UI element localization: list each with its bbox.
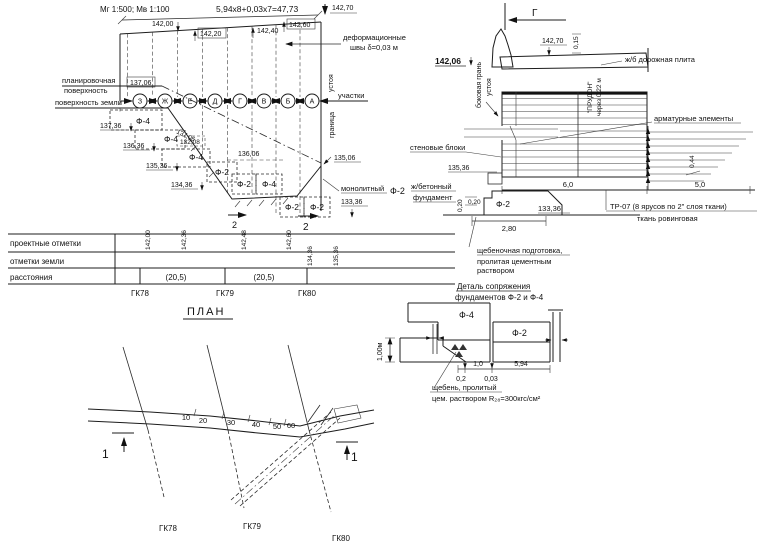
- detail-f2-label: Ф-2: [512, 328, 527, 338]
- foundation-f4-label: Ф-4: [189, 152, 203, 162]
- side-face-label-2: устоя: [486, 78, 493, 96]
- level-133-36: 133,36: [341, 199, 363, 206]
- level-137-36: 137,36: [100, 123, 122, 130]
- elevation-view: Мг 1:500; Мв 1:100 5,94x8+0,03x7=47,73 1…: [55, 4, 456, 233]
- joints-label-2: швы δ=0,03 м: [350, 43, 398, 52]
- table-row-ground: отметки земли: [10, 257, 64, 266]
- rubble-note-1: щебеночная подготовка,: [477, 246, 562, 255]
- distance-value: (20,5): [254, 273, 275, 282]
- design-elevation: 142,60: [286, 230, 293, 250]
- level-142-40: 142,40: [257, 28, 279, 35]
- level-142-00: 142,00: [152, 21, 174, 28]
- axis-letter: А: [310, 99, 315, 106]
- cut-2-mark: 2: [232, 220, 237, 230]
- ground-surface-label: поверхность земли: [55, 98, 122, 107]
- road-slab-label: ж/б дорожная плита: [625, 55, 696, 64]
- plan-station-gk78: ГК78: [159, 524, 177, 533]
- dim-5-94: 5,94: [514, 361, 528, 368]
- level-137-06: 137,06: [130, 80, 152, 87]
- dim-5-0: 5,0: [695, 180, 705, 189]
- abutment-profile: [492, 29, 513, 67]
- elevation-top-dimension: 5,94x8+0,03x7=47,73: [216, 4, 299, 14]
- plan-view: ПЛАН 10 20 30 40 50 60 ГК78 ГК79 ГК80: [88, 306, 374, 543]
- rc-foundation-label-1: ж/бетонный: [411, 182, 452, 191]
- dim-1-00m: 1,00м: [377, 342, 384, 361]
- detail-f4-label: Ф-4: [459, 310, 474, 320]
- prudon-label-1: "ПРУДОН": [587, 81, 594, 113]
- chainage-30: 30: [227, 418, 235, 427]
- level-136-06: 136,06: [238, 151, 260, 158]
- level-134-36: 134,36: [171, 182, 193, 189]
- survey-lines: [123, 345, 331, 512]
- rubble-note-3: раствором: [477, 266, 514, 275]
- planning-surface-label-1: планировочная: [62, 76, 115, 85]
- design-elevation: 142,00: [145, 230, 152, 250]
- chainage-20: 20: [199, 416, 207, 425]
- chainage-60: 60: [287, 421, 295, 430]
- monolithic-label: монолитный: [341, 184, 384, 193]
- scale-note: Мг 1:500; Мв 1:100: [100, 5, 170, 14]
- section-view: Г 142,70 0,15 ж/б дорожная плита 142,06 …: [410, 3, 757, 275]
- foundation-f2-label: Ф-2: [285, 202, 299, 212]
- level-135-36: 135,36: [146, 163, 168, 170]
- level-133-36: 133,36: [538, 204, 561, 213]
- planning-surface-label-2: поверхность: [64, 86, 108, 95]
- elevation-level-marks: 137,36 136,36 135,36 134,36 136,06 135,0…: [100, 123, 368, 217]
- level-142-70: 142,70: [542, 38, 564, 45]
- level-135-06: 135,06: [334, 155, 356, 162]
- station-gk78: ГК78: [131, 289, 149, 298]
- abutment-label: устоя: [328, 74, 335, 92]
- design-elevation: 142,48: [241, 230, 248, 250]
- cut-2-mark: 2: [303, 222, 309, 233]
- cut-1-marks: 1 1: [102, 433, 358, 464]
- foundation-f2-label: Ф-2: [237, 179, 251, 189]
- detail-note-1: щебень, пролитый: [432, 383, 497, 392]
- bearing-pad: [488, 173, 502, 184]
- dim-0-44: 0,44: [689, 155, 696, 168]
- ground-elevation: 135,36: [333, 246, 340, 266]
- rubble-note-2: пролитая цементным: [477, 257, 551, 266]
- axis-row: З Ж Е Д Г В Б А: [121, 94, 368, 108]
- detail-title-1: Деталь сопряжения: [457, 282, 530, 291]
- side-face-label-1: боковая грань: [475, 62, 483, 108]
- level-136-36: 136,36: [123, 143, 145, 150]
- table-row-distances: расстояния: [10, 273, 52, 282]
- dim-0-03: 0,03: [484, 376, 498, 383]
- rebar-label: арматурные элементы: [654, 114, 733, 123]
- station-gk80: ГК80: [298, 289, 316, 298]
- cut-g-label: Г: [532, 8, 538, 19]
- level-142-20: 142,20: [200, 31, 222, 38]
- station-gk79: ГК79: [216, 289, 234, 298]
- foundation-f2-label: Ф-2: [215, 167, 229, 177]
- foundation-f4-label: Ф-4: [262, 179, 276, 189]
- chainage-40: 40: [252, 420, 260, 429]
- axis-letter: З: [138, 99, 142, 106]
- foundation-steps: Ф-4 Ф-4 Ф-4 Ф-2 Ф-2 Ф-4 Ф-2 Ф-2 132,08: [110, 110, 330, 217]
- cut-1-label: 1: [351, 450, 358, 464]
- foundation-f2-label: Ф-2: [496, 199, 510, 209]
- monolithic-f2: Ф-2: [390, 186, 405, 196]
- chainage-50: 50: [273, 422, 281, 431]
- engineering-drawing-sheet: Мг 1:500; Мв 1:100 5,94x8+0,03x7=47,73 1…: [0, 0, 762, 548]
- axis-letter: Д: [213, 99, 218, 106]
- level-132-08: 132,08: [180, 139, 200, 146]
- plan-station-gk79: ГК79: [243, 522, 261, 531]
- dim-0-2: 0,2: [456, 376, 466, 383]
- roving-label: ткань ровинговая: [637, 214, 698, 223]
- foundation-f2-label: Ф-2: [310, 202, 324, 212]
- tr07-label: ТР-07 (8 ярусов по 2" слоя ткани): [610, 202, 727, 211]
- dim-0-15: 0,15: [573, 36, 580, 49]
- rc-foundation-label-2: фундамент: [413, 193, 453, 202]
- foundation-f4-label: Ф-4: [136, 116, 150, 126]
- boundary-label: граница: [329, 112, 336, 138]
- levels-table: проектные отметки отметки земли расстоян…: [8, 230, 455, 298]
- sections-label: участки: [338, 91, 364, 100]
- dim-6-0: 6,0: [563, 180, 573, 189]
- prudon-label-2: через 0,22 м: [596, 78, 603, 116]
- detail-note-2: цем. раствором R₂₈=300кгс/см²: [432, 394, 541, 403]
- detail-title-2: фундаментов Ф-2 и Ф-4: [455, 293, 544, 302]
- dim-1-0: 1,0: [473, 361, 483, 368]
- axis-letter: В: [262, 99, 267, 106]
- ground-elevation: 134,36: [307, 246, 314, 266]
- wall-blocks-label: стеновые блоки: [410, 143, 465, 152]
- drawing-canvas: Мг 1:500; Мв 1:100 5,94x8+0,03x7=47,73 1…: [0, 0, 762, 548]
- joints-label-1: деформационные: [343, 33, 406, 42]
- joint-detail: Деталь сопряжения фундаментов Ф-2 и Ф-4 …: [377, 282, 568, 403]
- chainage-10: 10: [182, 413, 190, 422]
- level-142-06: 142,06: [435, 56, 461, 66]
- axis-letter: Г: [238, 99, 242, 106]
- dim-0-20-v: 0,20: [457, 199, 464, 212]
- axis-letter: Б: [286, 99, 291, 106]
- rubble-triangles: [451, 344, 467, 357]
- design-elevation: 142,36: [181, 230, 188, 250]
- foundation-f4-label: Ф-4: [164, 134, 178, 144]
- axis-letter: Ж: [162, 99, 169, 106]
- table-row-design: проектные отметки: [10, 239, 81, 248]
- level-135-36: 135,36: [448, 165, 470, 172]
- plan-title: ПЛАН: [187, 306, 225, 318]
- plan-station-gk80: ГК80: [332, 534, 350, 543]
- distance-value: (20,5): [166, 273, 187, 282]
- dim-2-80: 2,80: [502, 224, 517, 233]
- cut-1-label: 1: [102, 447, 109, 461]
- level-142-70: 142,70: [332, 5, 354, 12]
